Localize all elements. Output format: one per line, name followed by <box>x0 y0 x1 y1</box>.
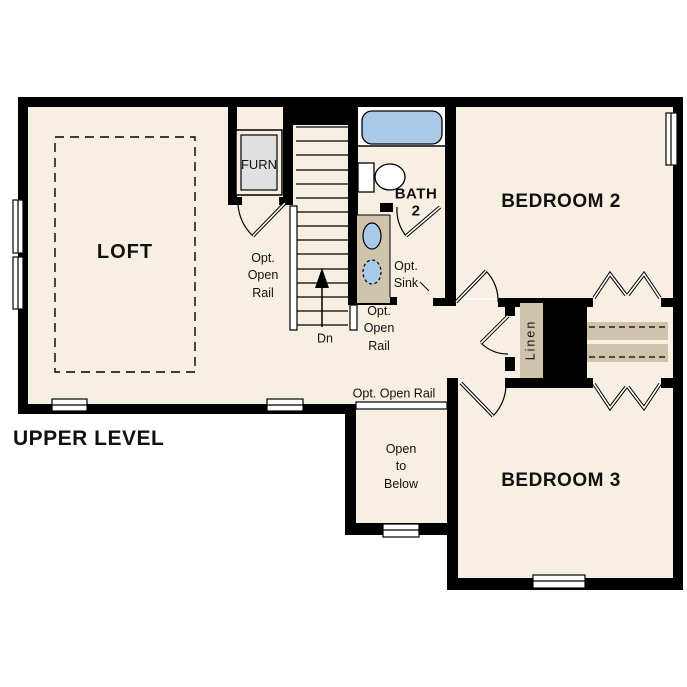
bedroom3-label: BEDROOM 3 <box>501 468 621 494</box>
wall-stairs-bath <box>348 107 358 303</box>
opt-open-rail-loft-edge-label: Opt. Open Rail <box>353 385 436 402</box>
sink <box>363 223 381 249</box>
furnace-label: FURN <box>241 156 277 174</box>
loft-floor <box>28 107 348 404</box>
open-to-below-label: Open to Below <box>384 441 418 493</box>
opt-sink-label: Opt. Sink <box>394 258 418 293</box>
wall-bath-door-jamb <box>380 203 393 212</box>
wall-furnace-jamb-right <box>279 197 293 205</box>
wall-bedroom3-top-right <box>661 378 673 388</box>
loft-label: LOFT <box>97 239 153 267</box>
toilet-tank <box>358 163 374 192</box>
wall-open-to-below-left <box>345 404 356 535</box>
wall-left <box>18 97 28 414</box>
floor-plan: LOFT FURN BATH 2 BEDROOM 2 BEDROOM 3 Opt… <box>0 0 687 687</box>
open-rail-stairs-right <box>350 305 357 330</box>
open-rail-stairs-left <box>290 206 297 330</box>
wall-linen-jamb-top <box>505 307 515 316</box>
wall-hall-stub <box>433 298 456 306</box>
wall-bath-bedroom2 <box>445 107 456 306</box>
linen-label: Linen <box>522 320 539 361</box>
wall-bedroom3-top-left <box>505 378 593 388</box>
stair-head-void <box>293 107 348 125</box>
wall-linen-jamb-bottom <box>505 357 515 371</box>
bathtub <box>362 111 442 144</box>
bath-label: BATH 2 <box>395 187 438 220</box>
bedroom3-closet-shelf <box>587 344 668 362</box>
wall-furnace-right <box>283 107 293 205</box>
plan-title: UPPER LEVEL <box>13 425 164 454</box>
wall-right <box>673 97 683 590</box>
open-rail-loft-edge <box>356 402 447 409</box>
bedroom2-closet-shelf <box>587 322 668 340</box>
floor-plan-drawing <box>0 0 687 687</box>
closets-floor <box>587 298 673 388</box>
wall-top <box>18 97 683 107</box>
bedroom2-label: BEDROOM 2 <box>501 189 621 215</box>
optional-sink <box>363 260 381 284</box>
wall-closet-front-right <box>661 298 673 307</box>
opt-open-rail-right-label: Opt. Open Rail <box>364 303 395 355</box>
wall-bedroom3-left <box>447 378 458 578</box>
wall-closet-chase <box>543 300 587 388</box>
stair-direction-label: Dn <box>317 330 333 347</box>
opt-open-rail-left-label: Opt. Open Rail <box>248 250 279 302</box>
wall-furnace-jamb-left <box>228 197 242 205</box>
